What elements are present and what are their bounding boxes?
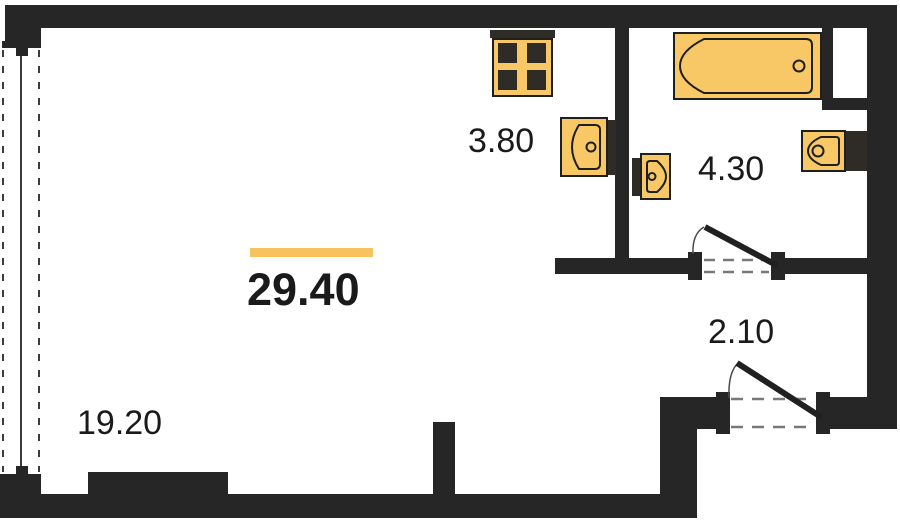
total-area-label: 29.40: [247, 267, 360, 312]
linework-layer: [0, 0, 900, 522]
hallway-area-label: 2.10: [708, 315, 774, 349]
living-room-area-label: 19.20: [77, 406, 162, 440]
balcony-glazing: [3, 50, 39, 472]
floor-plan: 29.40 19.20 3.80 4.30 2.10: [0, 0, 900, 522]
bathroom-door: [693, 227, 778, 272]
entrance-door: [729, 363, 821, 427]
entrance-door-swing-arc: [729, 364, 737, 398]
bath-door-leaf: [705, 227, 778, 266]
bath-door-swing-arc: [693, 227, 704, 254]
bathroom-area-label: 4.30: [698, 152, 764, 186]
entrance-door-leaf: [737, 363, 821, 417]
kitchen-area-label: 3.80: [468, 124, 534, 158]
total-area-accent-bar: [250, 248, 373, 257]
